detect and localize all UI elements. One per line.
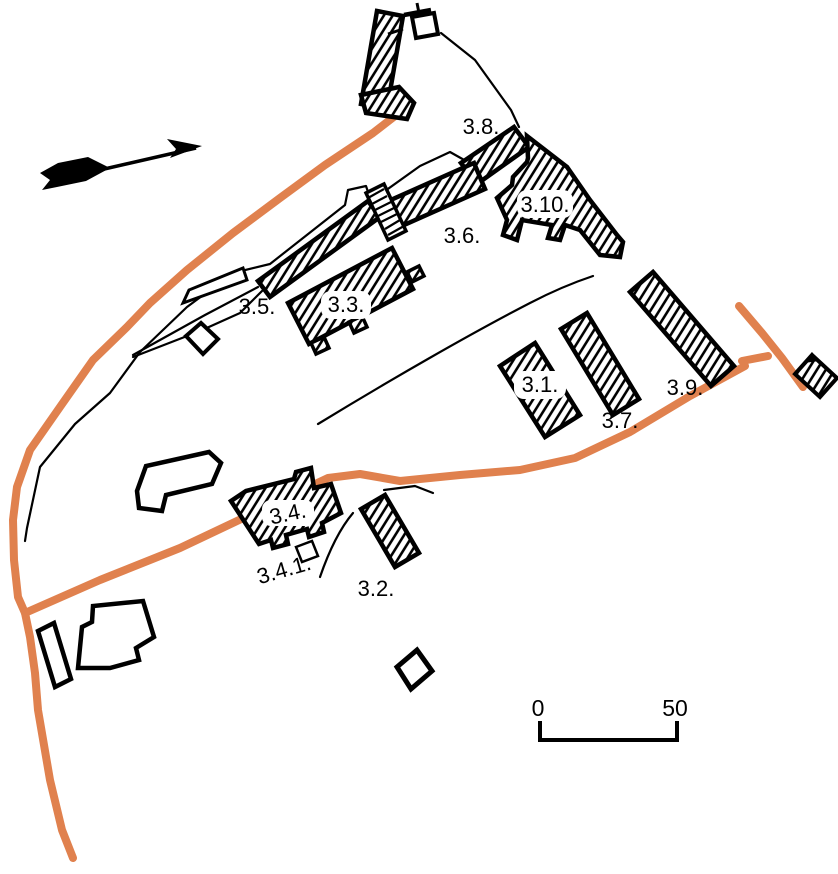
building-3-3-step [407,266,424,282]
scale-bar-end-label: 50 [662,695,688,721]
building-3-2 [361,495,419,567]
white-building-small-square-west [186,323,218,354]
boundary-line-northeast [441,33,519,127]
north-arrow-feather [40,157,110,190]
path-line-near-3-2-top [384,486,433,493]
white-building-square-south [397,650,432,689]
road-east-stub [742,356,768,361]
label-building-3-1: 3.1. [522,372,559,397]
scale-bar-start-label: 0 [532,695,545,721]
building-3-9 [630,272,734,386]
white-building-l-shape-southwest [78,601,154,668]
label-building-3-9: 3.9. [667,375,704,400]
north-arrow [40,139,202,190]
label-building-3-10: 3.10. [521,192,570,217]
site-plan-map: 3.8. 3.10. 3.6. 3.5. 3.3. 3.1. 3.7. 3.9.… [0,0,838,874]
white-building-narrow-southwest [38,623,71,687]
label-building-3-4-1: 3.4.1. [254,550,314,589]
north-arrow-head [167,139,202,158]
label-building-3-7: 3.7. [602,408,639,433]
label-building-3-5: 3.5. [239,294,276,319]
scale-bar-bracket [540,721,677,740]
building-north-unlabeled [361,11,414,119]
site-plan-page: 3.8. 3.10. 3.6. 3.5. 3.3. 3.1. 3.7. 3.9.… [0,0,838,874]
label-building-3-8: 3.8. [463,114,500,139]
scale-bar: 0 50 [532,695,688,740]
gate-structure-north [404,3,438,38]
gate-square [412,13,438,38]
label-building-3-3: 3.3. [328,292,365,317]
gate-stem [417,3,419,13]
label-building-3-2: 3.2. [358,576,395,601]
label-building-3-6: 3.6. [444,223,481,248]
white-building-l-shape-center [137,452,221,511]
building-north-foot [361,87,414,119]
